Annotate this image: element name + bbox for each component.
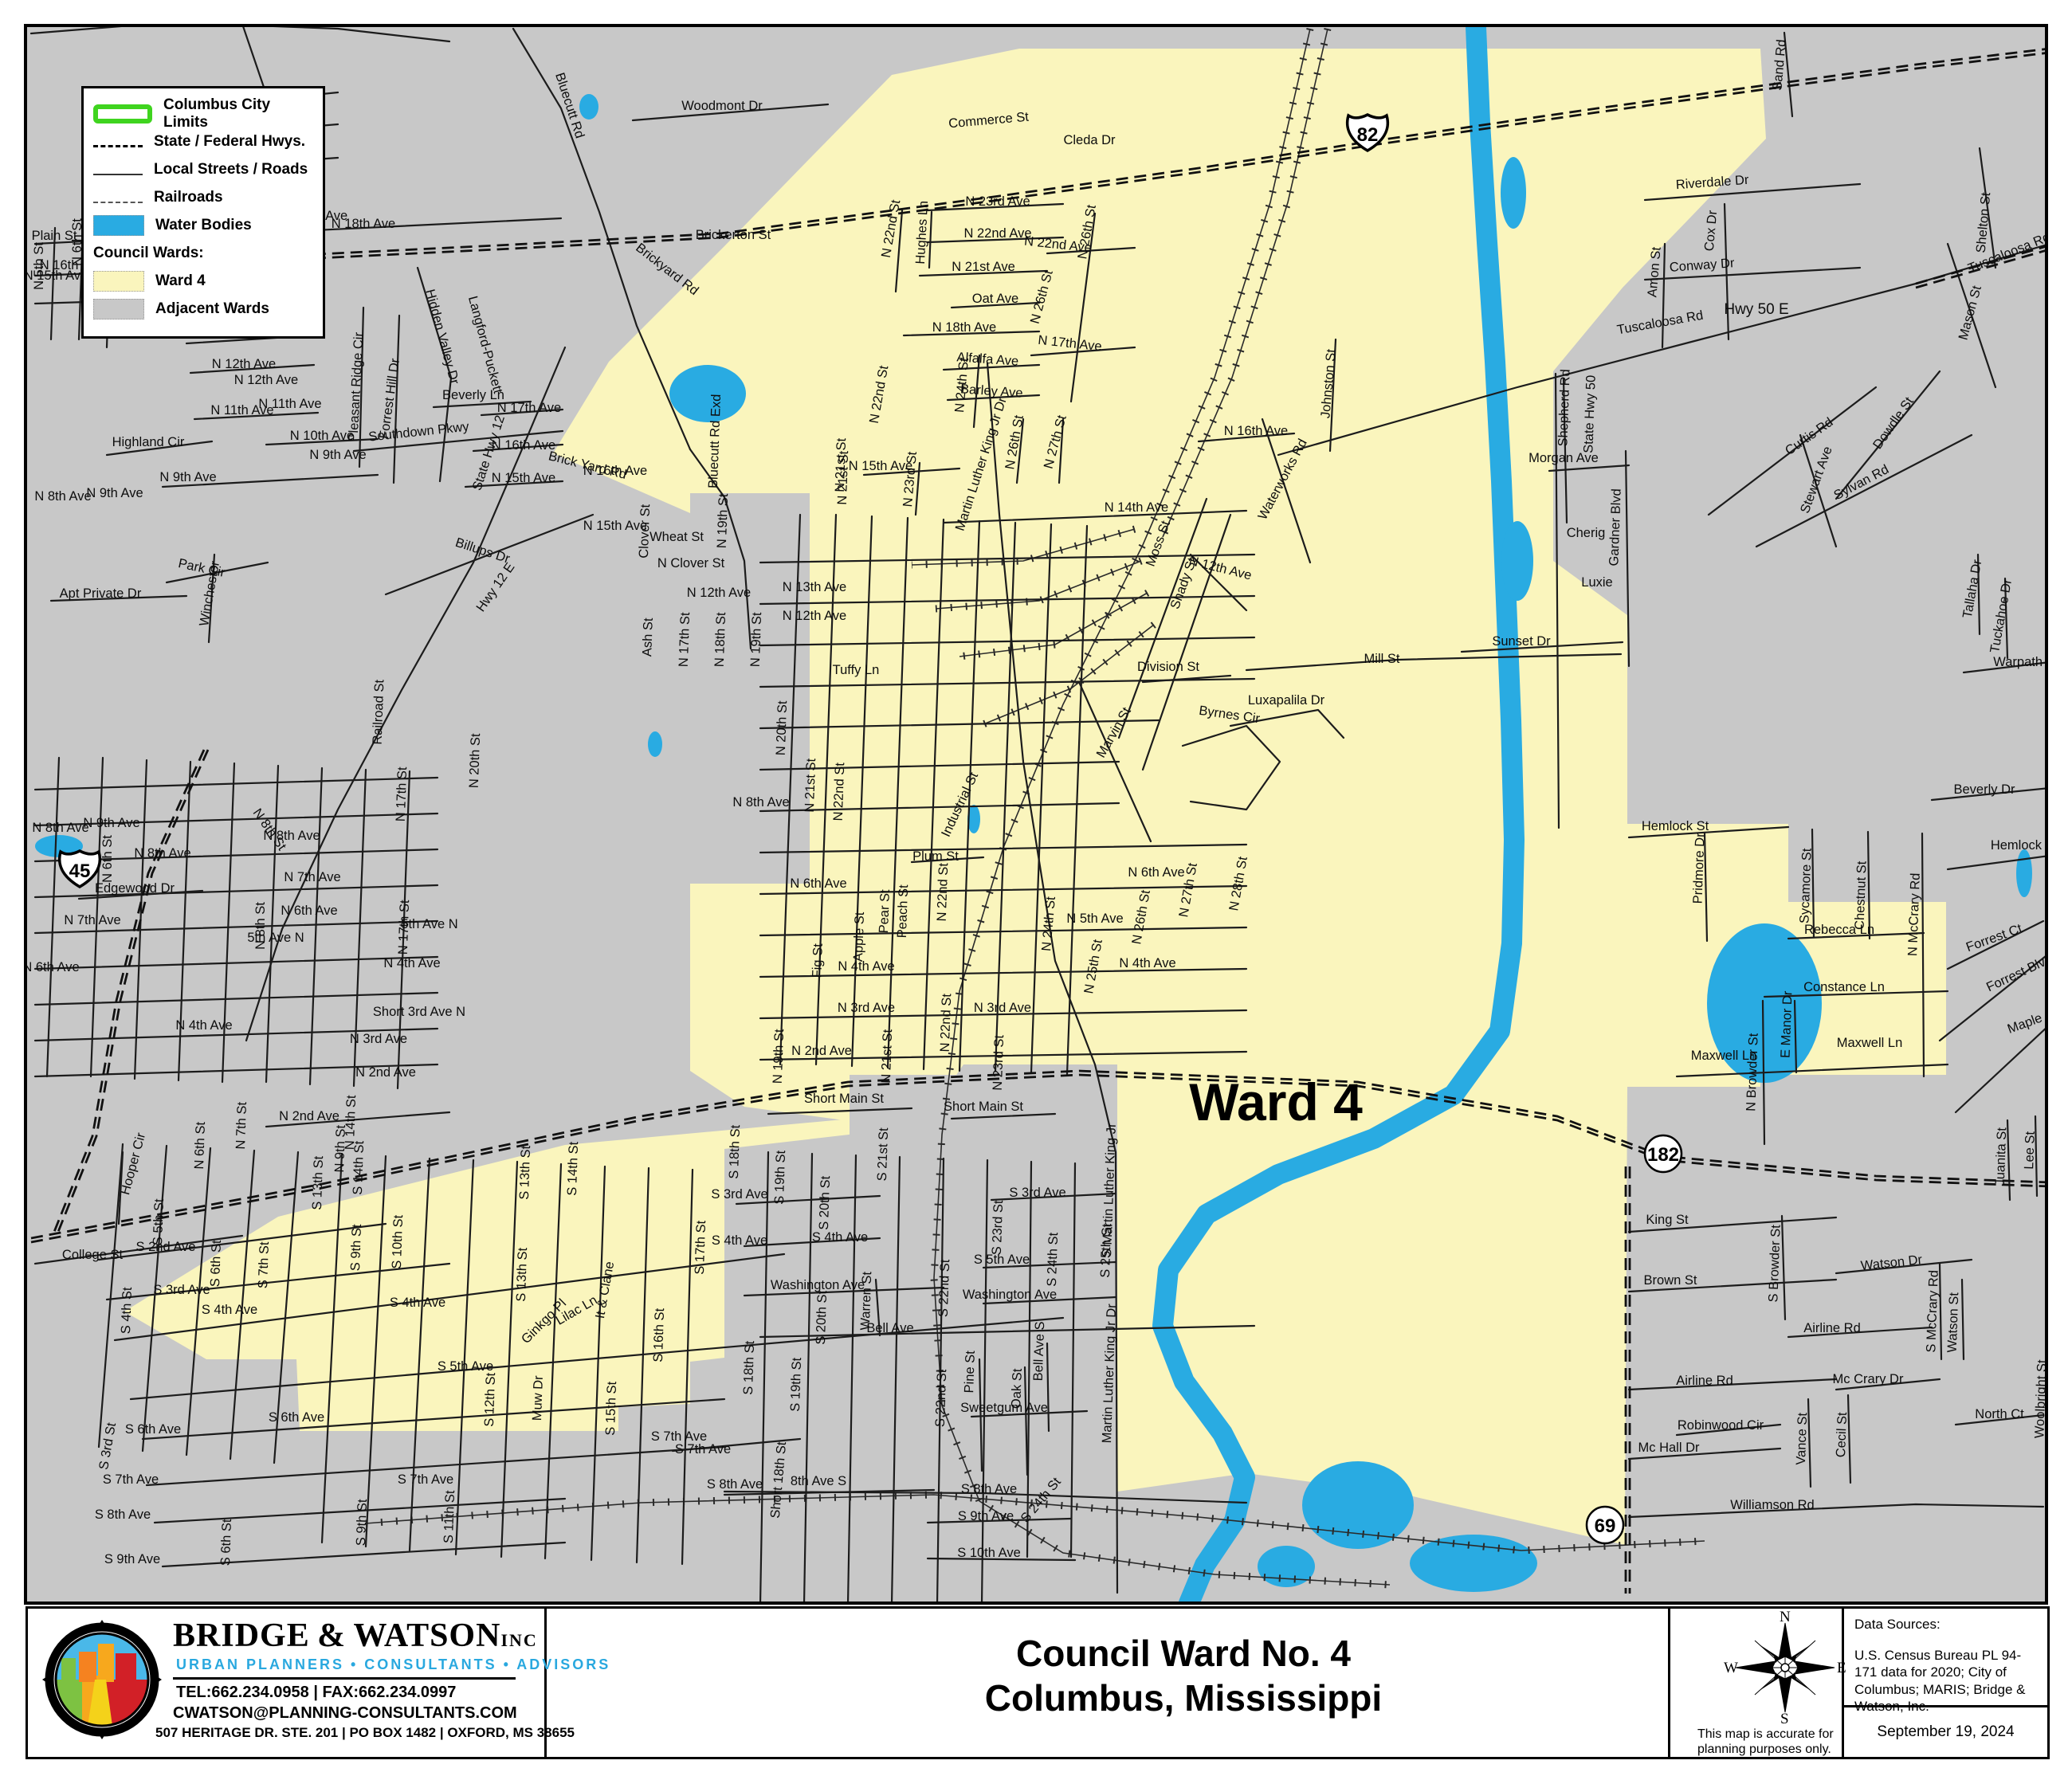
street-label: 5th Ave N (247, 931, 304, 945)
street-label: N 19th St (771, 1029, 787, 1084)
street-label: Luxie (1581, 575, 1612, 590)
street-label: S 4th Ave (812, 1230, 868, 1245)
street-label: Cleda Dr (1063, 133, 1116, 147)
map-title: Council Ward No. 4 Columbus, Mississippi (554, 1631, 1813, 1720)
street-label: Juanita St (1993, 1127, 2010, 1186)
legend-item-ward-4: Ward 4 (93, 271, 313, 292)
street-label: S 3rd Ave (1009, 1186, 1065, 1200)
street-label: Short Main St (804, 1092, 884, 1106)
street-label: N 4th Ave (1119, 956, 1175, 970)
street-label: S 18th St (727, 1124, 743, 1179)
legend-item-council-wards-: Council Wards: (93, 243, 313, 264)
street-label: S 5th St (151, 1198, 167, 1246)
legend-label: Water Bodies (155, 217, 252, 234)
street-label: Constance Ln (1803, 980, 1885, 994)
street-label: Sycamore St (1797, 848, 1814, 923)
street-label: N 6th St (100, 835, 115, 883)
street-label: N 4th Ave (175, 1018, 232, 1033)
street-label: Fig St (810, 943, 826, 978)
street-label: S 4th St (119, 1287, 135, 1335)
street-label: Mill St (1364, 652, 1400, 666)
legend-items: Columbus City LimitsState / Federal Hwys… (93, 104, 313, 320)
street-label: S 9th Ave (104, 1552, 160, 1566)
pond (1501, 521, 1533, 601)
company-block: BRIDGE & WATSONINC URBAN PLANNERS • CONS… (39, 1615, 517, 1749)
street-label: Mc Hall Dr (1638, 1441, 1701, 1455)
street-label: N 6th Ave (27, 960, 80, 974)
street-label: S 20th St (817, 1175, 833, 1230)
street-label: S 2nd Ave (136, 1240, 196, 1254)
compass-s: S (1780, 1711, 1789, 1728)
street-label: N 8th Ave (732, 795, 789, 810)
street-label: N 9th Ave (159, 470, 216, 484)
map-legend: Columbus City LimitsState / Federal Hwys… (81, 86, 325, 339)
data-sources-label: Data Sources: (1854, 1617, 1941, 1633)
compass-w: W (1724, 1660, 1738, 1677)
street-label: Gardner Blvd (1607, 488, 1623, 567)
street-label: N 3rd Ave (350, 1032, 407, 1046)
highway-shield-number: 82 (1357, 124, 1379, 146)
street-label: Pridmore Dr (1690, 833, 1707, 904)
street-label: N 18th Ave (932, 320, 996, 335)
street-label: N 23rd St (991, 1034, 1007, 1091)
street-label: Washington Ave (963, 1288, 1057, 1302)
street-label: N 21st St (879, 1029, 895, 1084)
street-label: Rebecca Ln (1804, 923, 1874, 937)
street-label: N 16th Ave (1224, 424, 1288, 438)
street-label: Pine St (962, 1351, 978, 1394)
legend-item-local-streets-roads: Local Streets / Roads (93, 159, 313, 180)
compass-n: N (1780, 1609, 1791, 1626)
pond (579, 94, 598, 120)
street-label: Oat Ave (972, 292, 1018, 306)
street-label: Muw Dr (530, 1375, 546, 1421)
street-label: Pear St (877, 889, 893, 934)
street-label: S 7th St (256, 1241, 272, 1289)
street-label: Hemlock St (1642, 819, 1709, 833)
street-label: Division St (1137, 660, 1199, 674)
street-label: N 9th St (332, 1124, 348, 1173)
street-label: S 4th Ave (390, 1296, 445, 1310)
legend-label: State / Federal Hwys. (154, 133, 305, 151)
pond (1258, 1546, 1315, 1587)
street-label: College St (62, 1248, 124, 1262)
street-label: S 4th Ave (202, 1303, 257, 1317)
street-label: Vance St (1794, 1412, 1810, 1465)
street-label: Hemlock St (1991, 838, 2045, 853)
street-label: S 8th Ave (961, 1482, 1017, 1496)
street-label: Tuffy Ln (833, 663, 880, 677)
street-label: Bell Ave (866, 1321, 913, 1335)
street-label: S McCrary Rd (1924, 1270, 1941, 1353)
street-label: S 13th St (310, 1155, 326, 1210)
street-label: Brown St (1644, 1273, 1697, 1288)
street-label: N 14th Ave (1105, 500, 1168, 515)
street-label: Short 3rd Ave N (373, 1005, 465, 1019)
street-label: S 3rd Ave (153, 1283, 210, 1297)
pond (2016, 849, 2032, 897)
street-label: Mc Crary Dr (1833, 1372, 1904, 1386)
street-label: S 10th St (390, 1214, 406, 1269)
map-title-line1: Council Ward No. 4 (554, 1631, 1813, 1676)
legend-swatch (93, 299, 144, 320)
street-label: Luxapalila Dr (1248, 693, 1325, 708)
street-label: N 17th Ave (497, 401, 561, 415)
adjacent-ward-patch (690, 493, 810, 884)
street-label: Washington Ave (771, 1278, 865, 1292)
street-label: S 17th St (693, 1220, 708, 1275)
street-label: N Clover St (657, 556, 725, 570)
street-label: S 25th St (1098, 1223, 1114, 1278)
street-label: Short Main St (944, 1100, 1023, 1114)
street-label: Apt Private Dr (60, 586, 142, 601)
street-label: Brickerton St (696, 228, 771, 242)
street-label: S 22nd St (936, 1259, 953, 1317)
pond (1302, 1461, 1414, 1549)
street-label: Peach St (895, 884, 911, 939)
street-label: S 16th St (651, 1307, 667, 1362)
street-label: N 12th Ave (687, 586, 751, 600)
street-label: N 21st Ave (952, 260, 1015, 274)
street-label: N 4th Ave (383, 956, 440, 970)
footer-bar: BRIDGE & WATSONINC URBAN PLANNERS • CONS… (26, 1606, 2050, 1759)
street-label: N 6th Ave (1128, 865, 1184, 880)
street-label: S 13th St (514, 1247, 530, 1302)
street-label: Railroad St (371, 679, 387, 745)
street-label: Wheat St (649, 530, 704, 544)
street-label: N 17th St (677, 612, 693, 668)
map-title-line2: Columbus, Mississippi (554, 1676, 1813, 1720)
legend-swatch (93, 174, 143, 175)
street-label: N 22nd St (935, 862, 952, 921)
company-address: 507 HERITAGE DR. STE. 201 | PO BOX 1482 … (155, 1725, 575, 1741)
street-label: N Browder St (1744, 1033, 1760, 1111)
street-label: S 19th St (772, 1150, 788, 1205)
street-label: S 19th St (788, 1357, 804, 1412)
street-label: Maxwell Ln (1837, 1036, 1903, 1050)
street-label: S 5th Ave (974, 1253, 1030, 1267)
street-label: N 18th St (712, 612, 728, 668)
map-date: September 19, 2024 (1842, 1705, 2047, 1757)
legend-item-columbus-city-limits: Columbus City Limits (93, 104, 313, 124)
legend-item-adjacent-wards: Adjacent Wards (93, 299, 313, 320)
street-label: S 3rd Ave (711, 1187, 767, 1202)
street-label: N 9th Ave (309, 448, 366, 462)
legend-item-water-bodies: Water Bodies (93, 215, 313, 236)
street-label: Sweetgum Ave (960, 1401, 1048, 1415)
street-label: Woodmont Dr (681, 99, 763, 113)
compass-rose: N E S W (1725, 1613, 1845, 1725)
street-label: N 6th Ave (790, 876, 846, 891)
street-label: S 7th Ave (675, 1442, 731, 1456)
street-label: S 24th St (1045, 1232, 1061, 1287)
legend-label: Columbus City Limits (163, 96, 313, 131)
highway-shield-number: 45 (69, 861, 91, 882)
street-label: S 12th St (482, 1372, 498, 1427)
page: Willowbrook RdHeritage AveN 21st AveN 21… (0, 0, 2072, 1776)
pond (669, 365, 746, 422)
street-label: N 12th Ave (234, 373, 298, 387)
street-label: S 20th St (814, 1290, 830, 1345)
legend-label: Local Streets / Roads (154, 161, 308, 178)
street-label: S 10th Ave (957, 1546, 1021, 1560)
street-label: N 3rd Ave (974, 1001, 1031, 1015)
street-label: N 18th Ave (332, 217, 395, 231)
street-label: N 10th Ave (290, 429, 354, 443)
street-label: N 17th St (396, 900, 412, 955)
ward4-label: Ward 4 (1189, 1072, 1363, 1131)
street-label: N 2nd Ave (791, 1044, 852, 1058)
street-label: Cecil St (1834, 1412, 1850, 1458)
street-label: N 7th St (233, 1101, 249, 1150)
street-label: Cherig (1567, 526, 1606, 540)
street-label: N 2nd Ave (279, 1109, 339, 1123)
street-label: S 8th Ave (707, 1477, 763, 1492)
street-label: N 19th St (715, 493, 731, 549)
street-label: N 20th St (774, 700, 790, 756)
street-label: Watson St (1945, 1292, 1962, 1352)
legend-label: Council Wards: (93, 245, 204, 262)
street-label: S 14th St (565, 1141, 581, 1196)
street-label: S 7th Ave (103, 1472, 159, 1487)
street-label: S 6th Ave (125, 1422, 181, 1437)
street-label: N 8th Ave (32, 821, 88, 835)
street-label: N 13th Ave (783, 580, 846, 594)
street-label: N 6th Ave (281, 904, 337, 918)
street-label: S 6th St (208, 1240, 224, 1288)
legend-swatch (93, 104, 152, 123)
street-label: N 12th Ave (783, 609, 846, 623)
street-label: N 6th St (192, 1121, 208, 1170)
company-tagline: URBAN PLANNERS • CONSULTANTS • ADVISORS (176, 1656, 610, 1673)
street-label: Airline Rd (1803, 1321, 1861, 1335)
legend-item-state-federal-hwys-: State / Federal Hwys. (93, 131, 313, 152)
street-label: Robinwood Cir (1678, 1418, 1764, 1433)
street-label: N 9th Ave (83, 816, 139, 830)
street-label: N 5th St (32, 242, 46, 290)
street-label: North Ct (1975, 1407, 2024, 1421)
company-name: BRIDGE & WATSONINC (173, 1617, 538, 1655)
legend-swatch (93, 271, 144, 292)
street-label: State Hwy 50 (1581, 374, 1598, 453)
street-label: S 22nd St (933, 1369, 950, 1427)
street-label: S 14th St (351, 1140, 367, 1195)
street-label: N 19th St (748, 612, 764, 668)
street-label: S Browder St (1766, 1225, 1783, 1303)
street-label: N 15th Ave (583, 519, 647, 533)
street-label: S 4th Ave (712, 1233, 767, 1248)
pond (1501, 157, 1526, 229)
street-label: N 3rd Ave (838, 1001, 895, 1015)
street-label: N 2nd Ave (355, 1065, 416, 1080)
street-label: Shepherd Rd (1556, 369, 1572, 447)
legend-swatch (93, 202, 143, 203)
street-label: N 22nd St (831, 762, 848, 821)
pond (1410, 1535, 1537, 1592)
map-canvas: Willowbrook RdHeritage AveN 21st AveN 21… (24, 24, 2048, 1605)
street-label: N 5th Ave (1066, 912, 1123, 926)
street-label: Highland Cir (112, 435, 185, 449)
brand-rule (173, 1677, 516, 1680)
street-label: Plum St (912, 849, 959, 864)
street-label: N 7th Ave (64, 913, 120, 927)
street-label: N 12th Ave (212, 357, 276, 371)
company-email: CWATSON@PLANNING-CONSULTANTS.COM (173, 1704, 517, 1723)
street-label: S 13th St (517, 1145, 533, 1200)
street-label: S 18th St (741, 1340, 757, 1395)
legend-item-railroads: Railroads (93, 187, 313, 208)
street-label: N 7th Ave (284, 870, 340, 884)
street-label: N 20th St (467, 733, 483, 789)
street-label: N 21st St (833, 437, 849, 492)
legend-swatch (93, 215, 144, 236)
street-label: Warpath Rd (1993, 655, 2045, 669)
street-label: N McCrary Rd (1905, 872, 1923, 956)
street-label: S 23rd St (990, 1200, 1006, 1256)
street-label: Apple St (851, 912, 867, 962)
street-label: Sunset Dr (1492, 634, 1551, 649)
company-suffix: INC (500, 1630, 537, 1650)
legend-swatch (93, 145, 143, 147)
ward-map-svg: Willowbrook RdHeritage AveN 21st AveN 21… (27, 27, 2045, 1602)
company-phone: TEL:662.234.0958 | FAX:662.234.0997 (176, 1684, 456, 1702)
street-label: 8th Ave S (791, 1474, 846, 1488)
street-label: N 11th Ave (258, 397, 321, 411)
street-label: Beverly Dr (1953, 782, 2015, 797)
adjacent-ward-patch (724, 1149, 1115, 1602)
street-label: Ash St (640, 617, 656, 657)
street-label: N 22nd Ave (963, 226, 1031, 241)
compass-e: E (1837, 1660, 1846, 1677)
street-label: Hwy 50 E (1724, 301, 1788, 318)
highway-shield-number: 69 (1595, 1515, 1616, 1537)
street-label: N 4th Ave (838, 959, 894, 974)
street-label: S 9th St (354, 1499, 370, 1547)
street-label: S 6th Ave (269, 1410, 324, 1425)
street-label: N 16th Ave (492, 438, 555, 453)
street-label: S 6th St (218, 1519, 234, 1566)
street-label: Lee St (2022, 1131, 2038, 1170)
legend-label: Railroads (154, 189, 223, 206)
street-label: N 22nd St (938, 993, 955, 1052)
street-label: S 9th St (348, 1224, 364, 1272)
street-label: King St (1646, 1213, 1689, 1227)
street-label: Morgan Ave (1528, 451, 1599, 465)
street-label: S 21st St (875, 1127, 891, 1182)
street-label: S 9th Ave (958, 1509, 1014, 1523)
street-label: N 21st St (803, 758, 818, 813)
street-label: E Manor Dr (1779, 990, 1795, 1058)
street-label: N 15th Ave (492, 471, 555, 485)
street-label: Airline Rd (1676, 1374, 1733, 1388)
legend-label: Adjacent Wards (155, 300, 269, 318)
company-logo-icon (42, 1620, 162, 1739)
street-label: S 8th Ave (95, 1507, 151, 1522)
legend-label: Ward 4 (155, 272, 206, 290)
pond (648, 731, 662, 757)
street-label: Williamson Rd (1730, 1498, 1814, 1512)
street-label: N 9th Ave (86, 486, 143, 500)
street-label: Chestnut St (1853, 861, 1870, 930)
street-label: N 17th St (394, 766, 410, 822)
street-label: Woolbright St (2032, 1359, 2045, 1439)
street-label: S 15th St (603, 1381, 619, 1436)
street-label: N 23rd Ave (965, 194, 1030, 209)
street-label: N 8th Ave (34, 489, 91, 504)
street-label: S 11th St (441, 1490, 457, 1544)
street-label: S 5th Ave (438, 1359, 493, 1374)
street-label: N 8th Ave (134, 846, 190, 861)
street-label: Bell Ave S (1031, 1321, 1048, 1382)
highway-shield-number: 182 (1647, 1144, 1679, 1166)
street-label: S 7th Ave (398, 1472, 453, 1487)
